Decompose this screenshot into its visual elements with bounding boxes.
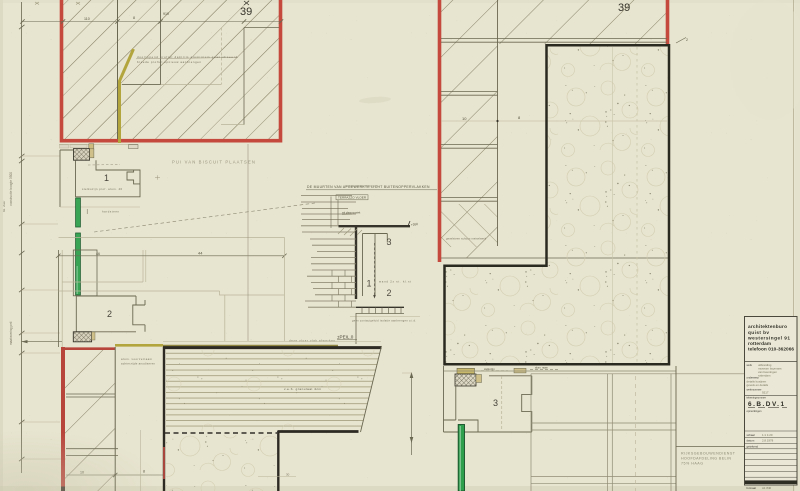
svg-text:3: 3 — [493, 398, 498, 408]
svg-text:gevels en details: gevels en details — [747, 383, 769, 387]
svg-text:rotterdam: rotterdam — [748, 341, 771, 346]
svg-text:opmerkingen: opmerkingen — [747, 409, 763, 413]
svg-text:39: 39 — [618, 2, 630, 14]
svg-text:A1 840: A1 840 — [762, 486, 772, 490]
svg-text:110: 110 — [84, 17, 90, 21]
svg-text:alum. raam: alum. raam — [535, 366, 548, 370]
svg-text:geen contactgeluid isolatie aa: geen contactgeluid isolatie aanbrengen o… — [352, 319, 416, 323]
svg-text:2: 2 — [387, 288, 392, 298]
svg-text:6.B.DV.1: 6.B.DV.1 — [748, 401, 785, 408]
svg-text:telefoon 010-362066: telefoon 010-362066 — [748, 346, 794, 351]
svg-text:10: 10 — [462, 116, 467, 121]
svg-text:breede profiel opnieuw aanbren: breede profiel opnieuw aanbrengen — [137, 60, 201, 64]
svg-text:architektenburo: architektenburo — [748, 324, 787, 329]
svg-text:bk. vloer: bk. vloer — [2, 201, 6, 212]
svg-text:getekend: getekend — [747, 444, 759, 448]
svg-text:tekeningnummer: tekeningnummer — [747, 396, 766, 400]
svg-text:werknummer: werknummer — [747, 388, 762, 392]
svg-text:1: 1 — [367, 279, 372, 289]
svg-text:2: 2 — [686, 38, 688, 42]
svg-text:3: 3 — [387, 237, 392, 247]
svg-text:1: 1 — [104, 173, 109, 183]
svg-text:westersingel 91: westersingel 91 — [747, 335, 790, 340]
svg-text:formaat: formaat — [747, 486, 757, 490]
svg-text:±PEIL.0: ±PEIL.0 — [337, 335, 354, 340]
svg-text:datum: datum — [747, 439, 755, 443]
svg-text:v.e.b. granulaat 4cm: v.e.b. granulaat 4cm — [284, 387, 322, 391]
svg-text:30: 30 — [286, 473, 290, 477]
svg-text:2.8.1978: 2.8.1978 — [762, 439, 774, 443]
svg-text:constructie hoogte 3500: constructie hoogte 3500 — [9, 172, 13, 206]
svg-text:8: 8 — [133, 16, 135, 20]
svg-text:39: 39 — [240, 6, 252, 18]
svg-text:TERRAZZO VLOER: TERRAZZO VLOER — [338, 196, 367, 200]
svg-text:wit glasmozaiek: wit glasmozaiek — [342, 211, 361, 215]
svg-text:gevelsteen schoon metselwerk: gevelsteen schoon metselwerk — [446, 237, 487, 241]
svg-text:hardsteen: hardsteen — [102, 210, 119, 214]
svg-text:DE MUURTEN VAN AFGEWERKTE LICH: DE MUURTEN VAN AFGEWERKTE LICHT BUITENOP… — [307, 185, 430, 189]
svg-text:alum. voorzetraam: alum. voorzetraam — [121, 357, 153, 361]
svg-text:werk: werk — [747, 363, 753, 367]
svg-text:1:1 1:20: 1:1 1:20 — [762, 433, 773, 437]
svg-text:maatvoering peil: maatvoering peil — [9, 321, 13, 345]
svg-text:achterzijde anodiseren: achterzijde anodiseren — [121, 362, 155, 366]
svg-text:schaal: schaal — [747, 433, 755, 437]
svg-text:PUI VAN BISCUIT PLAATSEN: PUI VAN BISCUIT PLAATSEN — [172, 160, 256, 165]
svg-text:9217: 9217 — [762, 391, 769, 395]
svg-text:stelkozijn prof. alum. 40: stelkozijn prof. alum. 40 — [82, 187, 122, 191]
svg-text:44: 44 — [198, 250, 203, 255]
svg-text:910: 910 — [163, 12, 169, 16]
svg-text:RIJKSGEBOUWENDIENST: RIJKSGEBOUWENDIENST — [681, 452, 736, 456]
svg-text:wand 2x st. kl.st: wand 2x st. kl.st — [379, 280, 411, 284]
svg-text:75% HAAG: 75% HAAG — [681, 462, 703, 466]
svg-text:doorlopend profiel daktrim alu: doorlopend profiel daktrim aluminium gea… — [137, 55, 237, 59]
svg-text:quist bv: quist bv — [748, 330, 769, 335]
svg-text:deze vloer vlak afwerken: deze vloer vlak afwerken — [289, 339, 335, 343]
svg-text:HOOFDAFDELING BELIN: HOOFDAFDELING BELIN — [681, 457, 731, 461]
svg-text:rotterdam: rotterdam — [758, 374, 771, 378]
svg-text:46: 46 — [96, 252, 100, 256]
svg-text:2: 2 — [107, 309, 112, 319]
svg-text:stelkozijn: stelkozijn — [484, 367, 495, 371]
